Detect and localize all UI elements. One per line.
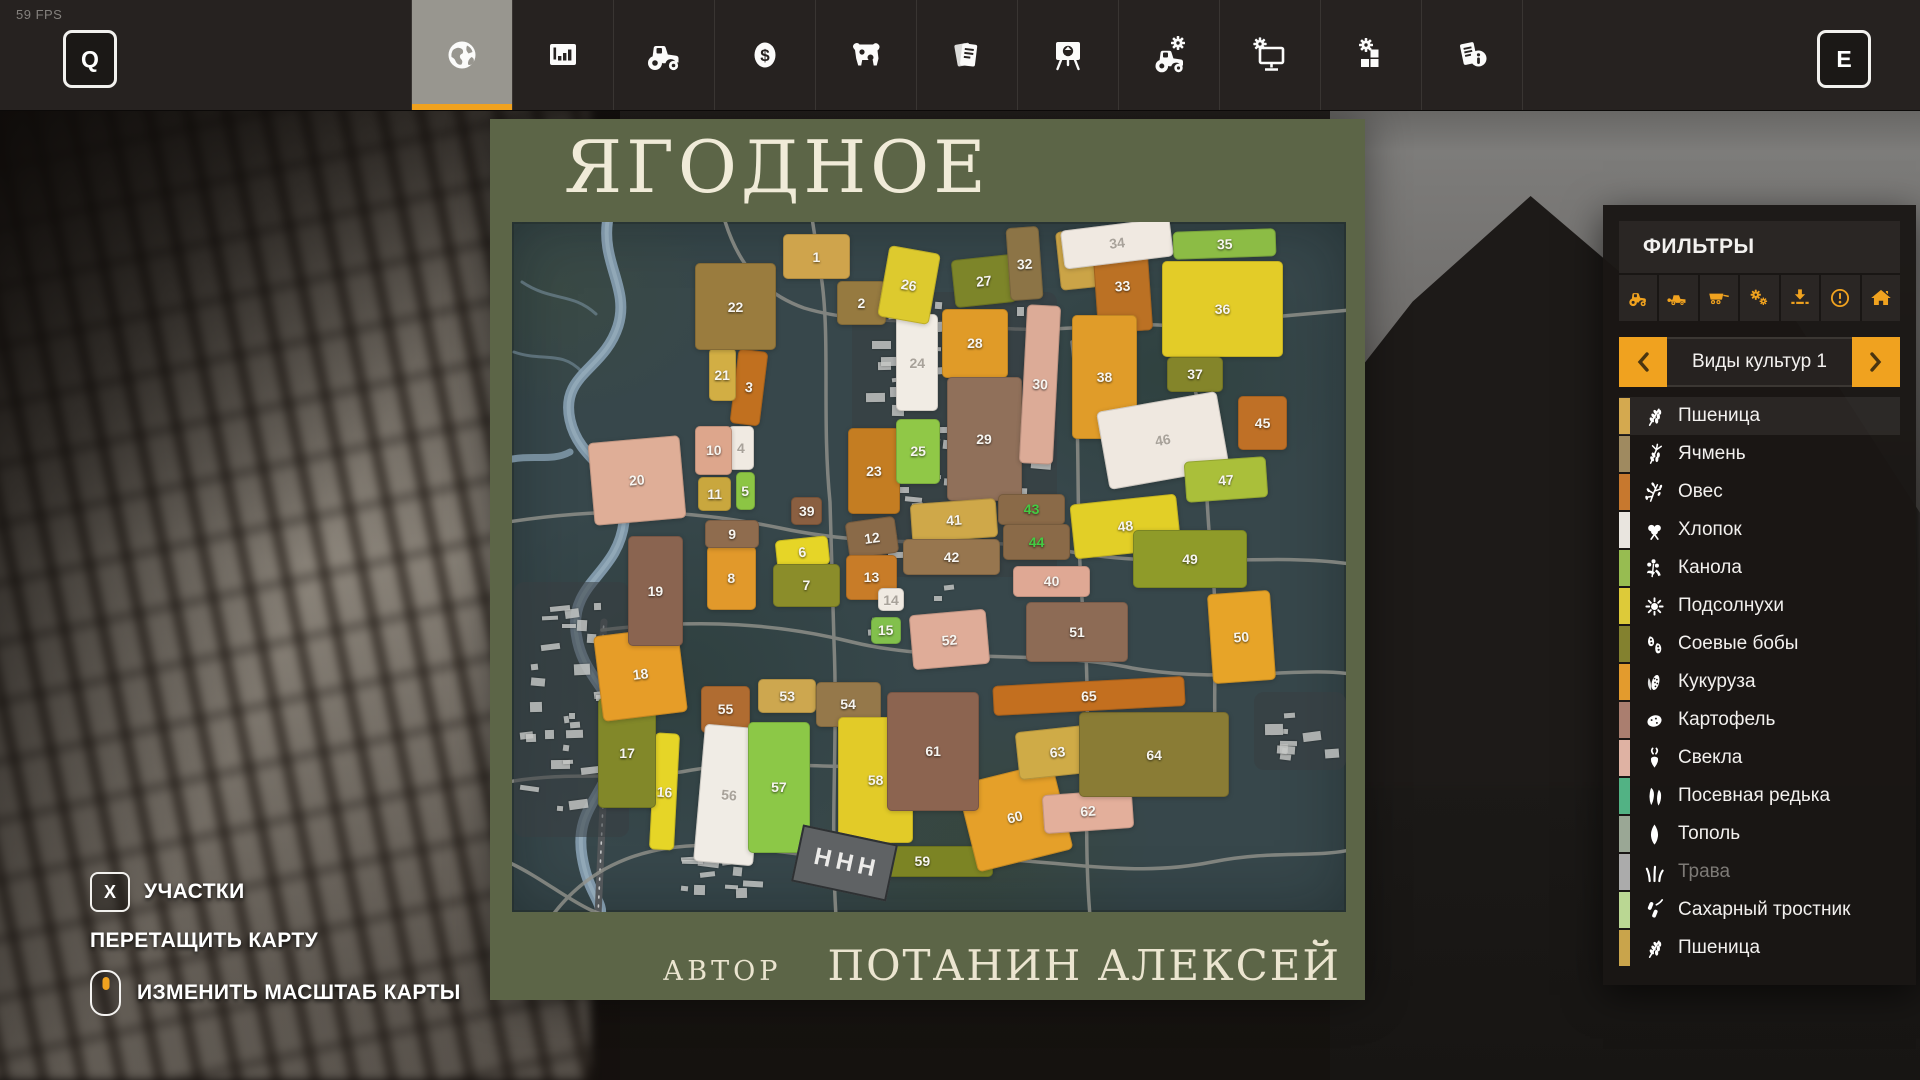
field-40[interactable]: 40: [1013, 566, 1090, 597]
building: [574, 664, 591, 675]
filter-tool-trailer[interactable]: [1700, 275, 1740, 321]
tab-map[interactable]: [412, 0, 513, 110]
crop-color-strip: [1619, 474, 1630, 510]
filter-tool-home[interactable]: [1862, 275, 1900, 321]
warning-icon: [1825, 285, 1855, 311]
field-49[interactable]: 49: [1133, 530, 1246, 587]
tractor-icon: [1623, 285, 1653, 311]
map-viewport[interactable]: 1234567891011121314151617181920212223242…: [512, 222, 1346, 912]
home-icon: [1866, 285, 1896, 311]
filter-tool-icons: [1619, 273, 1900, 321]
crop-color-strip: [1619, 892, 1630, 928]
crop-filter-row[interactable]: Овес: [1619, 473, 1900, 511]
field-32[interactable]: 32: [1006, 226, 1044, 301]
building: [1017, 307, 1024, 316]
field-number: 50: [1233, 628, 1250, 645]
field-number: 57: [771, 779, 787, 795]
building: [1265, 724, 1283, 735]
easel-icon: [1044, 31, 1092, 79]
crop-label: Ячмень: [1678, 443, 1746, 465]
crop-label: Картофель: [1678, 709, 1775, 731]
building: [530, 702, 543, 712]
crop-color-strip: [1619, 588, 1630, 624]
crop-color-strip: [1619, 550, 1630, 586]
field-number: 52: [941, 631, 958, 648]
tractor-gear-icon: [1145, 31, 1193, 79]
field-number: 65: [1081, 687, 1097, 704]
field-64[interactable]: 64: [1079, 712, 1229, 798]
crop-label: Пшеница: [1678, 937, 1760, 959]
crop-filter-row[interactable]: Кукуруза: [1619, 663, 1900, 701]
crop-filter-row[interactable]: Ячмень: [1619, 435, 1900, 473]
crop-filter-row[interactable]: Канола: [1619, 549, 1900, 587]
field-number: 36: [1215, 301, 1231, 317]
building: [542, 616, 558, 621]
hotkey-q[interactable]: Q: [63, 30, 117, 88]
field-19[interactable]: 19: [628, 536, 683, 646]
field-number: 39: [799, 503, 815, 519]
building: [576, 620, 586, 631]
building: [1283, 729, 1289, 734]
building: [526, 734, 536, 743]
crop-color-strip: [1619, 740, 1630, 776]
building: [563, 759, 573, 763]
fps-counter: 59 FPS: [16, 7, 62, 22]
cotton-icon: [1630, 519, 1678, 542]
tab-contracts[interactable]: [917, 0, 1018, 110]
crop-color-strip: [1619, 436, 1630, 472]
field-number: 46: [1153, 431, 1171, 449]
field-39[interactable]: 39: [791, 497, 822, 525]
building: [934, 596, 942, 601]
field-number: 34: [1108, 234, 1125, 252]
filters-header: ФИЛЬТРЫ: [1619, 221, 1900, 321]
soybean-icon: [1630, 633, 1678, 656]
building: [1325, 749, 1340, 759]
wheat-icon: [1630, 937, 1678, 960]
field-22[interactable]: 22: [695, 263, 775, 349]
filter-tool-warning[interactable]: [1821, 275, 1861, 321]
tab-finances[interactable]: [715, 0, 816, 110]
building: [557, 805, 564, 810]
category-next-button[interactable]: [1852, 337, 1900, 387]
field-number: 16: [656, 783, 672, 800]
crop-label: Пшеница: [1678, 405, 1760, 427]
building: [694, 885, 705, 895]
barley-icon: [1630, 443, 1678, 466]
crop-filter-row[interactable]: Тополь: [1619, 815, 1900, 853]
field-10[interactable]: 10: [695, 426, 732, 474]
field-24[interactable]: 24: [896, 314, 938, 411]
field-number: 63: [1048, 744, 1065, 762]
field-number: 28: [967, 335, 983, 351]
crop-label: Тополь: [1678, 823, 1740, 845]
building: [569, 713, 575, 719]
field-number: 64: [1146, 747, 1162, 763]
field-number: 23: [866, 463, 882, 479]
oats-icon: [1630, 481, 1678, 504]
field-number: 25: [910, 443, 926, 459]
hint-drag-map: ПЕРЕТАЩИТЬ КАРТУ: [90, 929, 461, 953]
paper-info-icon: [1448, 31, 1496, 79]
field-number: 27: [975, 272, 992, 290]
building: [562, 745, 569, 752]
building: [1283, 712, 1294, 718]
gears-icon: [1744, 285, 1774, 311]
field-number: 62: [1080, 803, 1097, 820]
crop-color-strip: [1619, 816, 1630, 852]
building: [531, 678, 546, 687]
tab-production[interactable]: [1321, 0, 1422, 110]
author-name: ПОТАНИН АЛЕКСЕЙ: [827, 941, 1341, 990]
crop-filter-row[interactable]: Сахарный тростник: [1619, 891, 1900, 929]
field-number: 29: [976, 431, 992, 447]
field-number: 15: [878, 622, 894, 638]
tab-help[interactable]: [1422, 0, 1523, 110]
field-number: 55: [718, 701, 734, 717]
wheat-icon: [1630, 405, 1678, 428]
crop-color-strip: [1619, 930, 1630, 966]
building: [681, 886, 688, 892]
hint-plots-label: УЧАСТКИ: [144, 880, 245, 904]
field-number: 4: [737, 440, 745, 456]
field-25[interactable]: 25: [896, 419, 939, 485]
radish-icon: [1630, 785, 1678, 808]
beet-icon: [1630, 747, 1678, 770]
field-50[interactable]: 50: [1207, 590, 1276, 685]
field-number: 45: [1255, 415, 1271, 431]
crop-label: Кукуруза: [1678, 671, 1756, 693]
field-43[interactable]: 43: [998, 494, 1065, 525]
shed-label: ННН: [811, 843, 882, 884]
globe-icon: [438, 31, 486, 79]
building: [900, 487, 909, 493]
field-number: 40: [1044, 573, 1060, 589]
field-5[interactable]: 5: [736, 472, 755, 511]
hotkey-e[interactable]: E: [1817, 30, 1871, 88]
field-number: 2: [858, 295, 866, 311]
field-28[interactable]: 28: [942, 309, 1009, 378]
field-number: 24: [910, 355, 926, 371]
field-1[interactable]: 1: [783, 234, 850, 279]
crop-label: Канола: [1678, 557, 1742, 579]
chart-icon: [539, 31, 587, 79]
field-36[interactable]: 36: [1162, 261, 1284, 358]
field-41[interactable]: 41: [910, 498, 998, 543]
tab-machines[interactable]: [1220, 0, 1321, 110]
filter-tool-download[interactable]: [1781, 275, 1821, 321]
filter-tool-tractor[interactable]: [1619, 275, 1659, 321]
crop-filter-row[interactable]: Картофель: [1619, 701, 1900, 739]
crop-filter-row[interactable]: Посевная редька: [1619, 777, 1900, 815]
menu-tabs: [411, 0, 1523, 110]
download-icon: [1785, 285, 1815, 311]
field-number: 5: [741, 483, 749, 499]
field-61[interactable]: 61: [887, 692, 979, 811]
crop-color-strip: [1619, 778, 1630, 814]
field-number: 12: [863, 528, 881, 546]
crop-label: Сахарный тростник: [1678, 899, 1850, 921]
crop-color-strip: [1619, 664, 1630, 700]
map-title: ЯГОДНОЕ: [564, 125, 990, 209]
field-number: 61: [925, 743, 941, 759]
field-number: 33: [1114, 277, 1131, 294]
field-number: 54: [840, 696, 856, 712]
field-8[interactable]: 8: [707, 546, 755, 609]
field-45[interactable]: 45: [1238, 396, 1286, 451]
field-number: 59: [915, 853, 931, 869]
field-number: 35: [1217, 236, 1233, 253]
field-number: 20: [629, 471, 646, 488]
hint-zoom-label: ИЗМЕНИТЬ МАСШТАБ КАРТЫ: [137, 981, 461, 1005]
crop-filter-row[interactable]: Свекла: [1619, 739, 1900, 777]
field-52[interactable]: 52: [908, 609, 989, 671]
field-9[interactable]: 9: [705, 520, 758, 548]
hint-drag-label: ПЕРЕТАЩИТЬ КАРТУ: [90, 929, 318, 953]
tab-animals[interactable]: [816, 0, 917, 110]
crop-label: Трава: [1678, 861, 1730, 883]
crop-filter-row[interactable]: Пшеница: [1619, 929, 1900, 967]
building: [544, 730, 553, 740]
crop-color-strip: [1619, 702, 1630, 738]
field-number: 41: [946, 512, 963, 529]
field-7[interactable]: 7: [773, 564, 840, 607]
author-label: АВТОР: [663, 956, 782, 987]
field-number: 42: [944, 549, 960, 565]
game-screen: 59 FPS Q E ЯГОДНОЕ: [0, 0, 1920, 1080]
building: [566, 730, 583, 738]
crop-filter-list: Пшеница Ячмень Овес Хлопок Канола Подсол…: [1619, 397, 1900, 967]
blocks-gear-icon: [1347, 31, 1395, 79]
crop-color-strip: [1619, 626, 1630, 662]
hint-plots: X УЧАСТКИ: [90, 872, 461, 912]
building: [531, 664, 539, 671]
building: [872, 341, 891, 349]
tab-statistics[interactable]: [513, 0, 614, 110]
crop-filter-row[interactable]: Пшеница: [1619, 397, 1900, 435]
field-23[interactable]: 23: [848, 428, 900, 514]
building: [569, 721, 579, 727]
field-number: 43: [1024, 501, 1040, 517]
map-author-credit: АВТОР ПОТАНИН АЛЕКСЕЙ: [663, 941, 1341, 990]
field-20[interactable]: 20: [588, 435, 687, 525]
field-number: 7: [802, 577, 810, 593]
control-hints: X УЧАСТКИ ПЕРЕТАЩИТЬ КАРТУ ИЗМЕНИТЬ МАСШ…: [90, 872, 461, 1033]
field-number: 56: [720, 786, 737, 803]
field-number: 21: [714, 367, 730, 383]
building: [866, 393, 885, 402]
tab-vehicles[interactable]: [614, 0, 715, 110]
filter-category-nav: Виды культур 1: [1619, 337, 1900, 387]
field-number: 3: [744, 378, 754, 395]
field-number: 47: [1218, 471, 1235, 488]
tab-prices[interactable]: [1018, 0, 1119, 110]
papers-icon: [943, 31, 991, 79]
category-prev-button[interactable]: [1619, 337, 1667, 387]
category-label: Виды культур 1: [1667, 337, 1852, 387]
field-number: 18: [632, 665, 649, 683]
field-21[interactable]: 21: [709, 348, 736, 401]
crop-label: Овес: [1678, 481, 1723, 503]
trailer-icon: [1704, 285, 1734, 311]
field-number: 60: [1005, 807, 1024, 826]
filter-tool-gears[interactable]: [1740, 275, 1780, 321]
field-number: 10: [706, 442, 722, 458]
field-number: 53: [779, 688, 795, 704]
building: [569, 798, 589, 810]
crop-color-strip: [1619, 854, 1630, 890]
building: [743, 881, 764, 888]
filters-panel: ФИЛЬТРЫ Виды культур 1 Пшеница Ячмень Ов…: [1603, 205, 1916, 985]
field-number: 44: [1029, 534, 1045, 550]
field-number: 58: [868, 772, 884, 788]
field-number: 49: [1182, 551, 1198, 567]
field-14[interactable]: 14: [878, 588, 904, 611]
field-35[interactable]: 35: [1173, 228, 1277, 259]
harvester-icon: [1664, 285, 1694, 311]
field-44[interactable]: 44: [1003, 524, 1070, 561]
mouse-scroll-icon: [90, 970, 121, 1016]
building: [732, 866, 742, 876]
field-number: 37: [1187, 366, 1203, 382]
field-53[interactable]: 53: [758, 679, 816, 714]
map-panel: ЯГОДНОЕ: [490, 119, 1365, 1000]
dollar-icon: [741, 31, 789, 79]
field-42[interactable]: 42: [903, 539, 1000, 576]
filter-tool-harvester[interactable]: [1659, 275, 1699, 321]
canola-icon: [1630, 557, 1678, 580]
field-11[interactable]: 11: [698, 477, 731, 512]
hotkey-x[interactable]: X: [90, 872, 130, 912]
poplar-icon: [1630, 823, 1678, 846]
field-number: 19: [648, 583, 664, 599]
crop-label: Соевые бобы: [1678, 633, 1798, 655]
crop-color-strip: [1619, 398, 1630, 434]
field-number: 14: [883, 592, 899, 608]
crop-color-strip: [1619, 512, 1630, 548]
field-number: 22: [728, 299, 744, 315]
crop-label: Посевная редька: [1678, 785, 1830, 807]
field-number: 38: [1097, 369, 1113, 385]
field-number: 51: [1069, 624, 1085, 640]
corn-icon: [1630, 671, 1678, 694]
field-number: 17: [619, 745, 635, 761]
sugarcane-icon: [1630, 899, 1678, 922]
grass-icon: [1630, 861, 1678, 884]
building: [562, 624, 576, 628]
potato-icon: [1630, 709, 1678, 732]
field-number: 8: [727, 570, 735, 586]
crop-filter-row[interactable]: Хлопок: [1619, 511, 1900, 549]
filters-title: ФИЛЬТРЫ: [1619, 221, 1900, 273]
field-number: 26: [900, 276, 918, 294]
building: [1277, 745, 1296, 754]
field-51[interactable]: 51: [1026, 602, 1129, 663]
hint-zoom-map: ИЗМЕНИТЬ МАСШТАБ КАРТЫ: [90, 970, 461, 1016]
crop-filter-row[interactable]: Подсолнухи: [1619, 587, 1900, 625]
field-15[interactable]: 15: [871, 617, 901, 645]
field-47[interactable]: 47: [1184, 456, 1268, 503]
building: [564, 716, 570, 724]
field-number: 11: [707, 486, 722, 502]
monitor-gear-icon: [1246, 31, 1294, 79]
crop-label: Хлопок: [1678, 519, 1742, 541]
field-29[interactable]: 29: [947, 377, 1022, 501]
cow-icon: [842, 31, 890, 79]
field-number: 13: [864, 569, 880, 585]
tab-helpers[interactable]: [1119, 0, 1220, 110]
field-number: 6: [798, 544, 807, 561]
tractor-icon: [640, 31, 688, 79]
field-number: 48: [1116, 517, 1133, 535]
building: [724, 884, 737, 889]
field-37[interactable]: 37: [1167, 357, 1224, 393]
sunflower-icon: [1630, 595, 1678, 618]
building: [594, 603, 601, 610]
field-number: 32: [1017, 255, 1034, 272]
building: [935, 302, 942, 310]
crop-filter-row[interactable]: Трава: [1619, 853, 1900, 891]
field-number: 30: [1032, 376, 1048, 393]
crop-label: Подсолнухи: [1678, 595, 1784, 617]
field-12[interactable]: 12: [845, 515, 900, 559]
field-number: 9: [728, 526, 736, 542]
field-number: 1: [813, 249, 821, 265]
crop-filter-row[interactable]: Соевые бобы: [1619, 625, 1900, 663]
crop-label: Свекла: [1678, 747, 1742, 769]
